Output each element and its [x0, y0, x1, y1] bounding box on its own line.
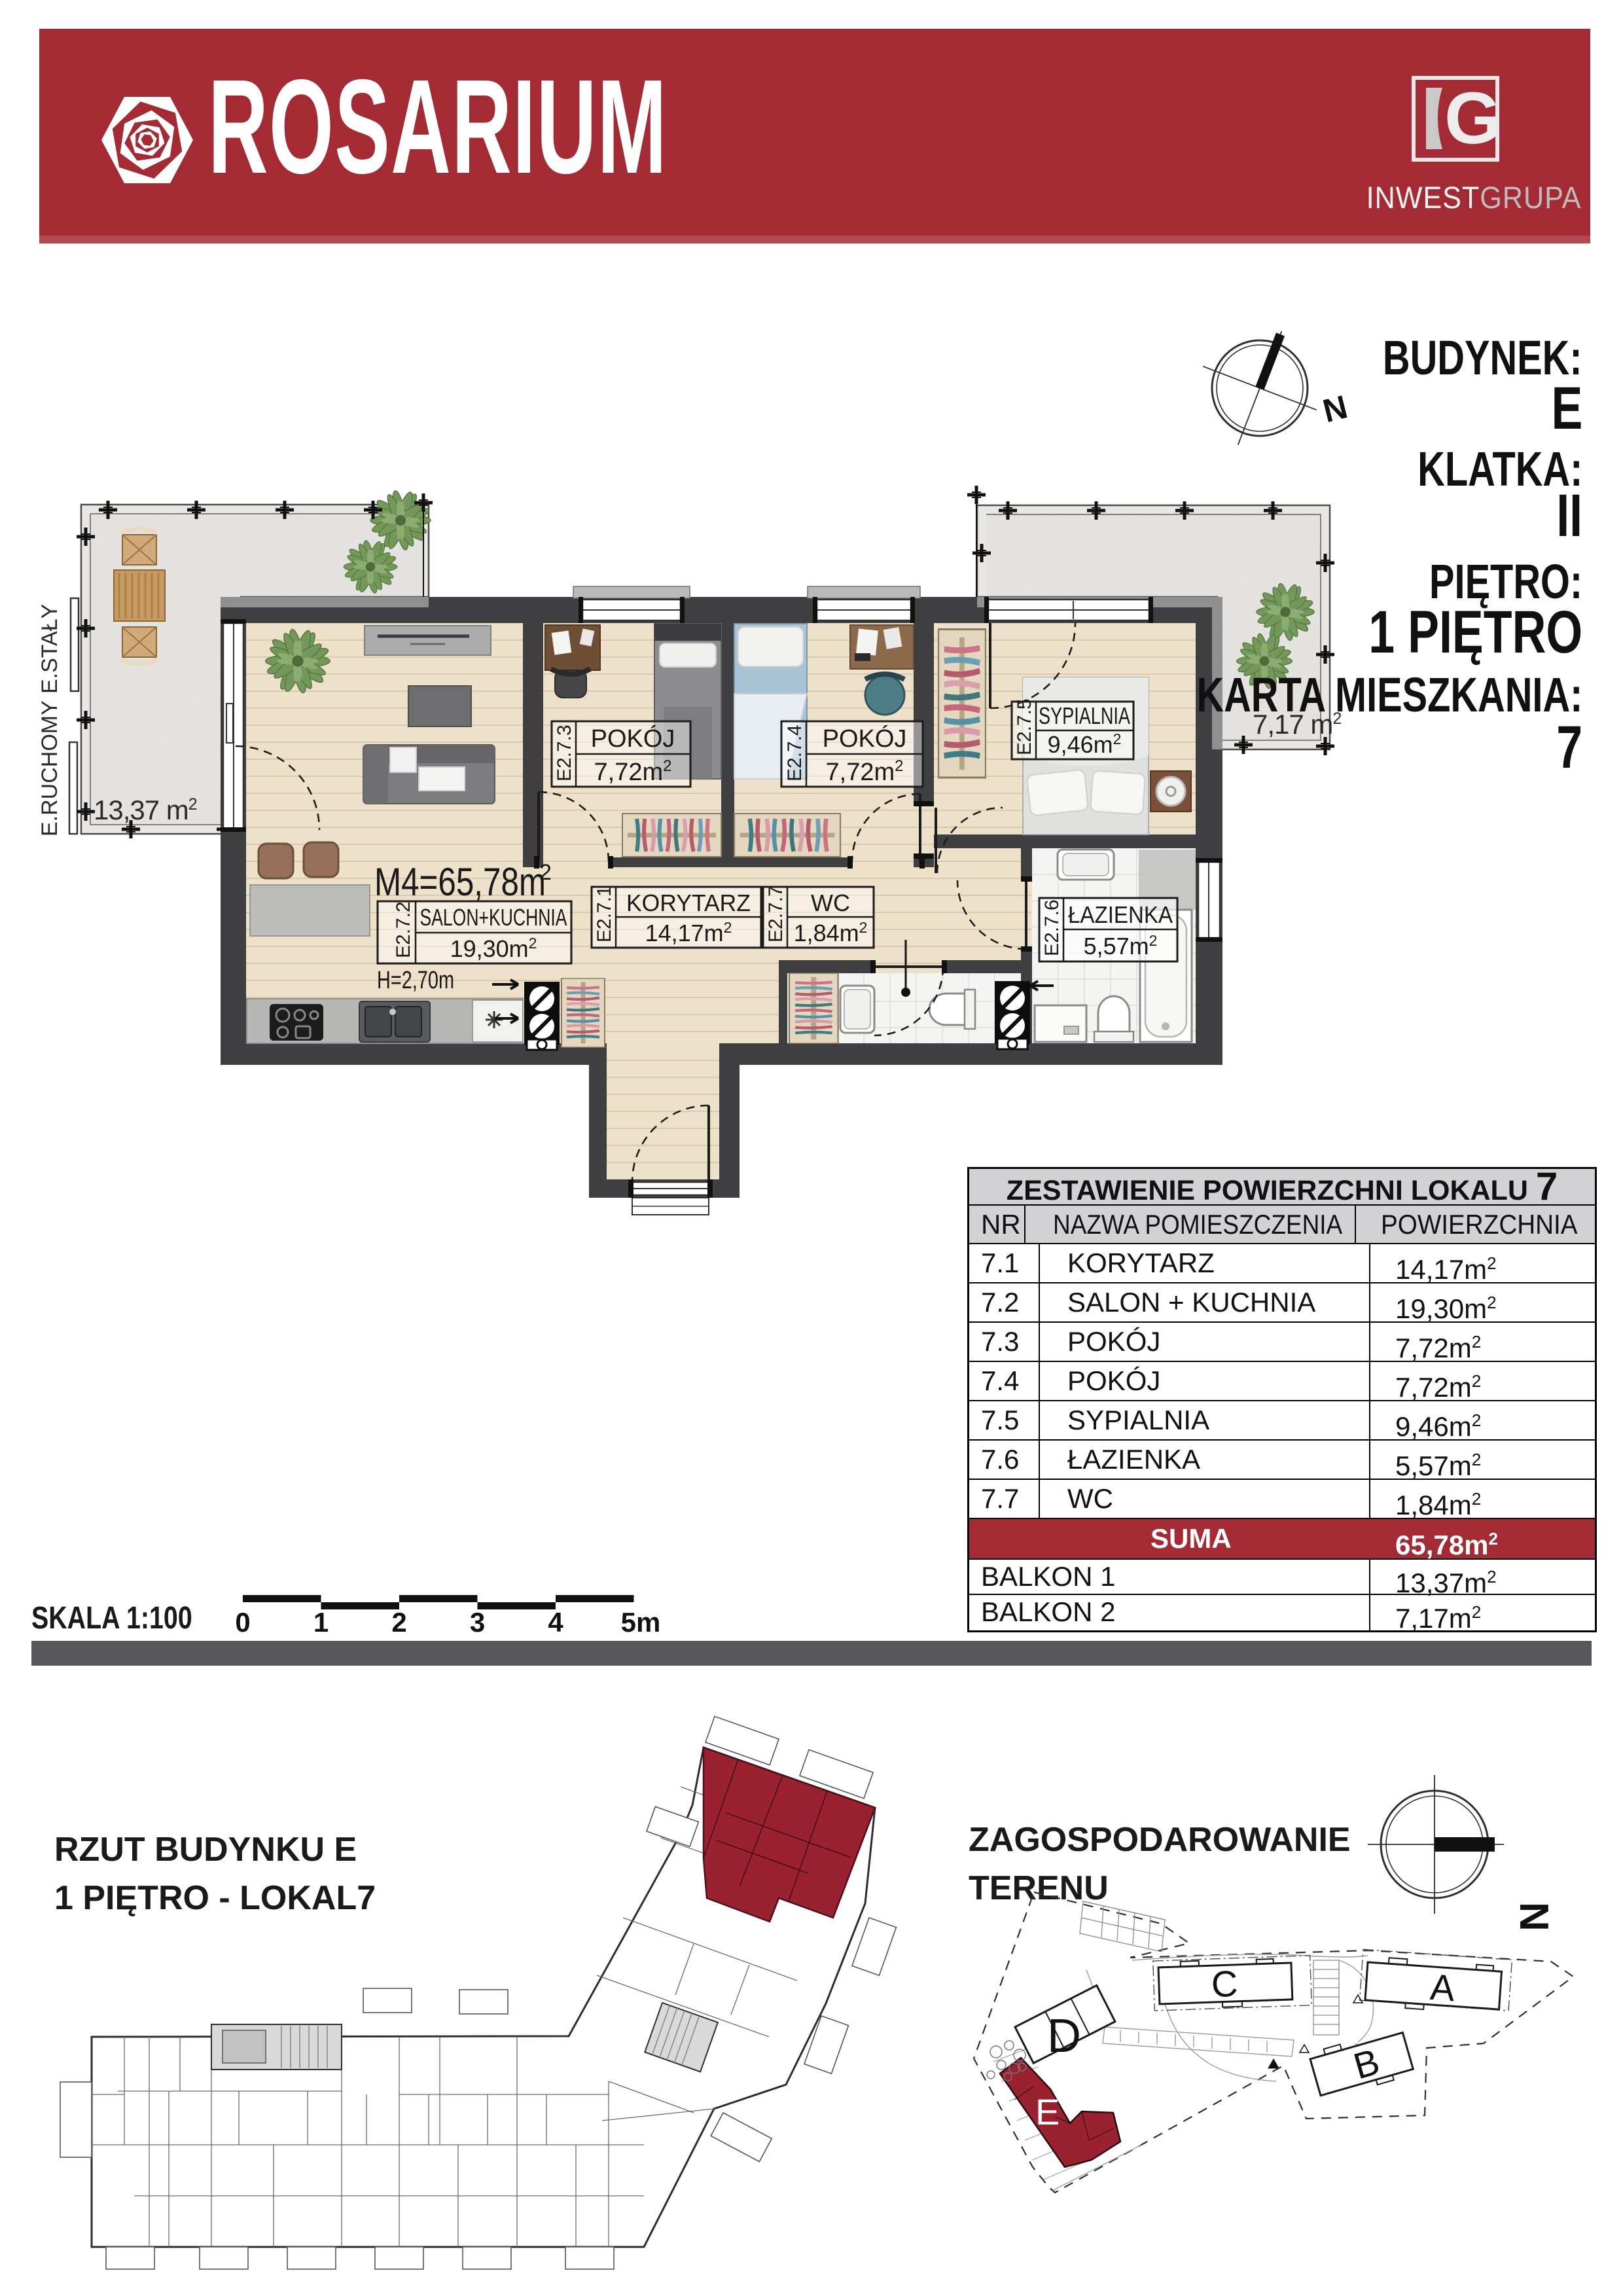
svg-text:9,46m2: 9,46m2: [1048, 730, 1122, 758]
svg-text:ŁAZIENKA: ŁAZIENKA: [1068, 901, 1173, 928]
svg-text:1,84m2: 1,84m2: [794, 919, 868, 946]
svg-text:POKÓJ: POKÓJ: [823, 725, 907, 753]
svg-text:E2.7.7: E2.7.7: [765, 886, 787, 942]
svg-text:0: 0: [235, 1607, 250, 1638]
svg-text:SALON+KUCHNIA: SALON+KUCHNIA: [420, 904, 567, 931]
svg-text:13,37 m2: 13,37 m2: [94, 795, 197, 825]
svg-text:WC: WC: [811, 889, 850, 916]
svg-text:M4=65,78m: M4=65,78m: [374, 860, 546, 904]
svg-text:E2.7.6: E2.7.6: [1041, 899, 1063, 956]
svg-text:N: N: [1319, 388, 1351, 429]
svg-text:7,72m2: 7,72m2: [594, 757, 672, 786]
svg-text:E2.7.1: E2.7.1: [594, 886, 615, 942]
svg-text:A: A: [1429, 1966, 1456, 2009]
svg-text:2: 2: [539, 860, 552, 885]
svg-text:E.STAŁY: E.STAŁY: [37, 604, 62, 694]
svg-text:KORYTARZ: KORYTARZ: [626, 889, 751, 916]
svg-text:E2.7.3: E2.7.3: [554, 725, 575, 781]
svg-text:E2.7.4: E2.7.4: [784, 725, 806, 781]
svg-text:2: 2: [391, 1607, 406, 1638]
svg-text:E2.7.5: E2.7.5: [1014, 698, 1035, 755]
svg-text:5m: 5m: [621, 1607, 661, 1638]
svg-text:G: G: [1444, 77, 1499, 159]
svg-text:D: D: [1047, 2010, 1081, 2062]
svg-text:H=2,70m: H=2,70m: [377, 967, 454, 994]
svg-text:E: E: [1035, 2091, 1060, 2132]
svg-text:3: 3: [470, 1607, 485, 1638]
svg-text:4: 4: [548, 1607, 563, 1638]
svg-text:19,30m2: 19,30m2: [450, 935, 537, 962]
svg-text:C: C: [1211, 1963, 1239, 2005]
svg-text:7,72m2: 7,72m2: [826, 757, 904, 786]
svg-text:POKÓJ: POKÓJ: [591, 725, 675, 753]
svg-text:N: N: [1511, 1902, 1556, 1931]
svg-text:E2.7.2: E2.7.2: [393, 901, 414, 958]
svg-text:5,57m2: 5,57m2: [1084, 932, 1158, 960]
svg-text:SYPIALNIA: SYPIALNIA: [1039, 702, 1130, 729]
svg-text:14,17m2: 14,17m2: [645, 919, 732, 946]
svg-text:1: 1: [313, 1607, 329, 1638]
svg-text:E.RUCHOMY: E.RUCHOMY: [37, 700, 62, 836]
